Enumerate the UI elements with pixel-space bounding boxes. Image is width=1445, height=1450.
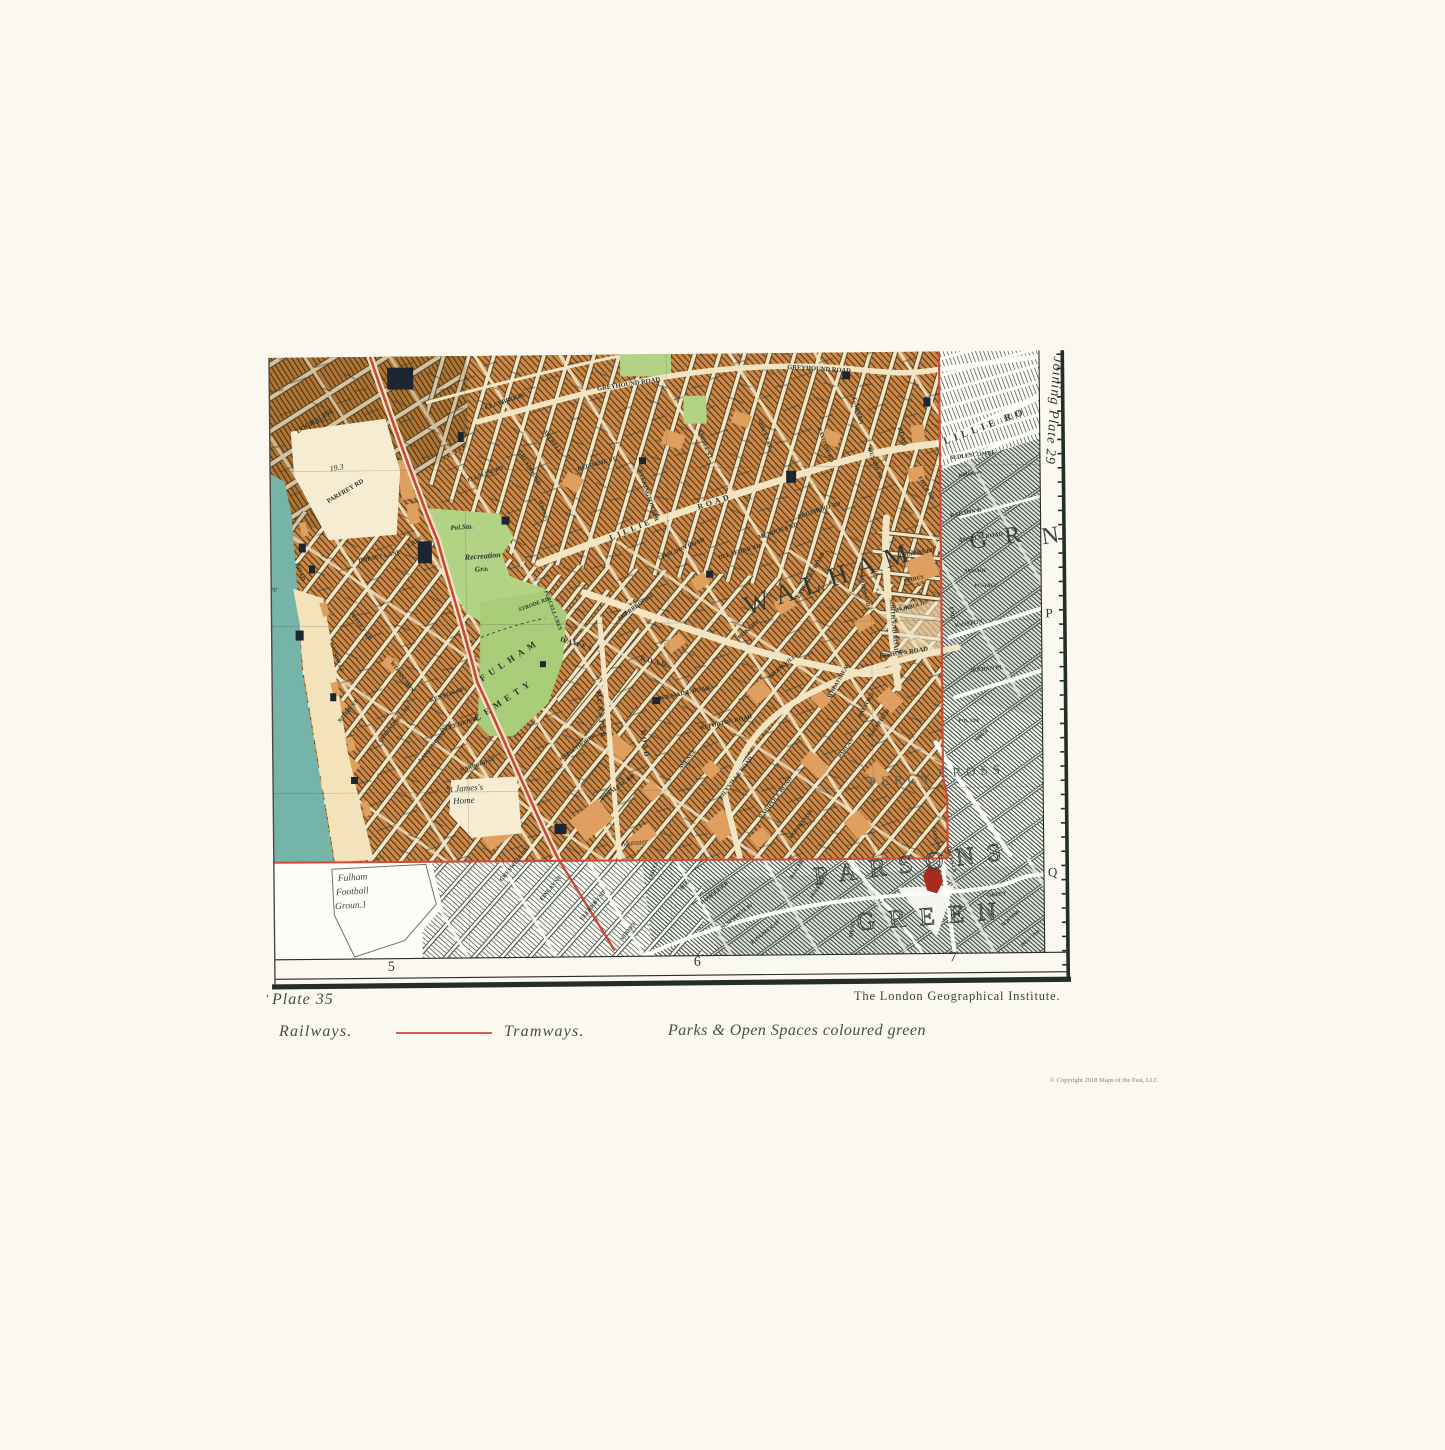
svg-text:6: 6 — [694, 955, 701, 970]
svg-text:Plate 35: Plate 35 — [271, 991, 334, 1008]
svg-text:Railways.: Railways. — [278, 1023, 352, 1040]
svg-text:Q: Q — [1048, 864, 1058, 879]
svg-text:ARMADE: ARMADE — [964, 569, 987, 574]
svg-text:Parks & Open Spaces coloured g: Parks & Open Spaces coloured green — [667, 1022, 926, 1039]
svg-text:Football: Football — [335, 886, 370, 898]
svg-text:Fulham: Fulham — [337, 872, 368, 884]
svg-text:5: 5 — [388, 960, 395, 975]
svg-text:Groun.1: Groun.1 — [335, 900, 367, 912]
svg-text:Home: Home — [452, 795, 475, 806]
svg-text:POL STA: POL STA — [958, 719, 979, 724]
svg-text:7: 7 — [950, 950, 957, 965]
svg-text:Tramways.: Tramways. — [504, 1023, 585, 1040]
svg-text:EUSTACE: EUSTACE — [974, 584, 998, 589]
svg-text:P: P — [1045, 605, 1052, 620]
svg-text:': ' — [266, 994, 269, 1005]
svg-text:Cha.: Cha. — [899, 602, 913, 611]
svg-text:The London Geographical Instit: The London Geographical Institute. — [854, 989, 1060, 1003]
svg-text:© Copyright 2018 Maps of the P: © Copyright 2018 Maps of the Past, LLC — [1050, 1077, 1158, 1084]
